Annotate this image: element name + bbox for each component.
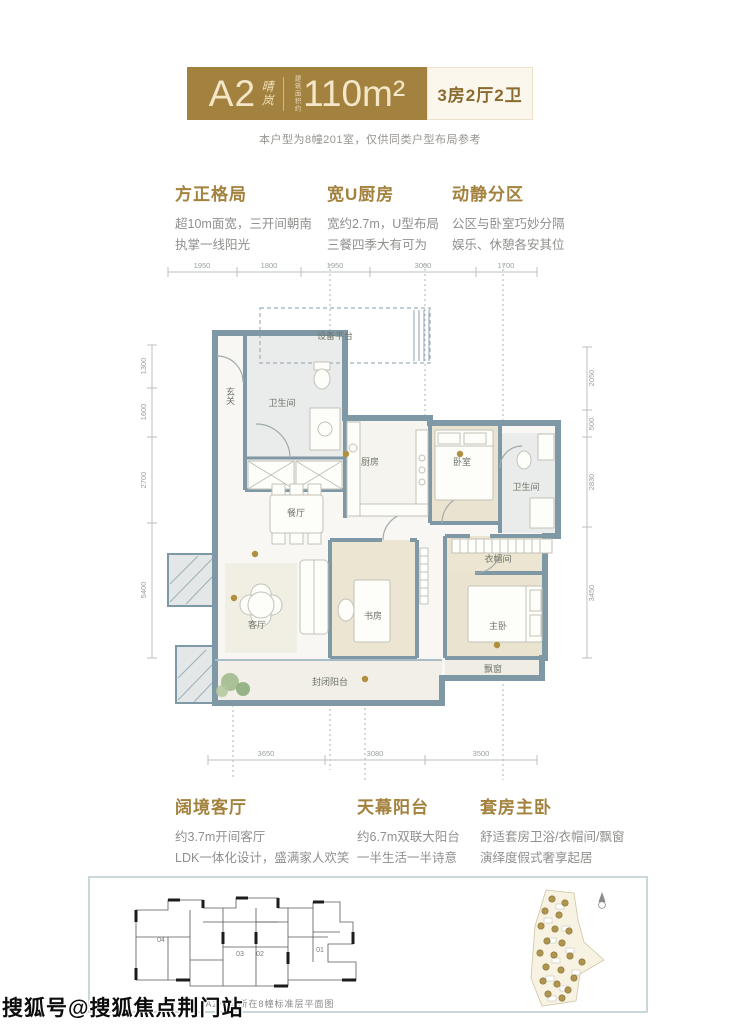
- feature-line: 舒适套房卫浴/衣帽间/飘窗: [480, 827, 645, 848]
- dim-bottom-3: 3500: [473, 749, 490, 758]
- feature-line: 执掌一线阳光: [175, 235, 340, 256]
- room-balcony: 封闭阳台: [312, 676, 348, 687]
- feature-title: 动静分区: [452, 180, 617, 205]
- area-value: 110m²: [303, 75, 405, 112]
- feature-title: 套房主卧: [480, 793, 645, 818]
- feature-living-room: 阔境客厅 约3.7m开间客厅 LDK一体化设计，盛满家人欢笑: [175, 793, 340, 869]
- feature-line: 演绎度假式奢享起居: [480, 848, 645, 869]
- feature-line: 约3.7m开间客厅: [175, 827, 340, 848]
- disclaimer-text: 本户型为8幢201室，仅供同类户型布局参考: [0, 131, 740, 147]
- feature-line: 公区与卧室巧妙分隔: [452, 214, 617, 235]
- header: A2 晴岚 建筑面积约 110m² 3房2厅2卫: [187, 67, 533, 120]
- dim-top-1: 1950: [194, 261, 211, 270]
- room-closet: 衣帽间: [484, 553, 511, 564]
- room-equipment: 设备平台: [317, 330, 353, 341]
- feature-title: 方正格局: [175, 180, 340, 205]
- siteplan-drawing: [518, 886, 618, 1012]
- dim-top-4: 3000: [415, 261, 432, 270]
- feature-line: LDK一体化设计，盛满家人欢笑: [175, 848, 340, 869]
- dim-top-5: 1700: [498, 261, 515, 270]
- feature-title: 阔境客厅: [175, 793, 340, 818]
- feature-line: 娱乐、休憩各安其位: [452, 235, 617, 256]
- flyer-page: A2 晴岚 建筑面积约 110m² 3房2厅2卫 本户型为8幢201室，仅供同类…: [0, 0, 740, 1027]
- keyplan-unit-04: 04: [157, 937, 165, 944]
- dim-bottom-1: 3650: [258, 749, 275, 758]
- feature-line: 超10m面宽，三开间朝南: [175, 214, 340, 235]
- dim-left-1: 1300: [139, 358, 148, 375]
- room-master: 主卧: [489, 620, 507, 631]
- dim-left-2: 1600: [139, 404, 148, 421]
- floorplan-drawing: 1950 1800 1950 3000 1700 3650 3080 3500 …: [130, 258, 610, 783]
- room-bay-window: 飘窗: [484, 663, 502, 674]
- dim-right-1: 2050: [587, 370, 596, 387]
- project-seal: 晴岚: [259, 80, 276, 108]
- dim-left-4: 5400: [139, 582, 148, 599]
- keyplan-unit-02: 02: [256, 951, 264, 958]
- feature-square-layout: 方正格局 超10m面宽，三开间朝南 执掌一线阳光: [175, 180, 340, 256]
- north-arrow-icon: [599, 892, 606, 908]
- dim-bottom-2: 3080: [367, 749, 384, 758]
- feature-zoning: 动静分区 公区与卧室巧妙分隔 娱乐、休憩各安其位: [452, 180, 617, 256]
- ac-platforms: [168, 554, 215, 703]
- feature-master-suite: 套房主卧 舒适套房卫浴/衣帽间/飘窗 演绎度假式奢享起居: [480, 793, 645, 869]
- room-study: 书房: [364, 610, 382, 621]
- room-bath2: 卫生间: [512, 481, 539, 492]
- room-dining: 餐厅: [287, 507, 305, 518]
- dim-right-4: 3450: [587, 585, 596, 602]
- keyplan-drawing: 04 03 02 01: [128, 892, 363, 992]
- room-living: 客厅: [248, 619, 266, 630]
- unit-code: A2: [209, 75, 256, 112]
- dim-top-3: 1950: [327, 261, 344, 270]
- dim-top-2: 1800: [261, 261, 278, 270]
- header-divider: [283, 77, 284, 111]
- room-entry: 玄关: [225, 386, 235, 406]
- room-bath1: 卫生间: [268, 397, 295, 408]
- sohu-watermark: 搜狐号@搜狐焦点荆门站: [2, 992, 243, 1022]
- keyplan-unit-03: 03: [236, 951, 244, 958]
- area-prefix: 建筑面积约: [291, 75, 301, 113]
- keyplan-unit-01: 01: [316, 947, 324, 954]
- layout-badge: 3房2厅2卫: [427, 67, 533, 120]
- room-kitchen: 厨房: [361, 456, 379, 467]
- dim-right-2: 500: [587, 418, 596, 431]
- dim-right-3: 2830: [587, 474, 596, 491]
- room-bedroom: 卧室: [453, 456, 471, 467]
- dim-left-3: 2700: [139, 472, 148, 489]
- header-area-badge: A2 晴岚 建筑面积约 110m²: [187, 67, 427, 120]
